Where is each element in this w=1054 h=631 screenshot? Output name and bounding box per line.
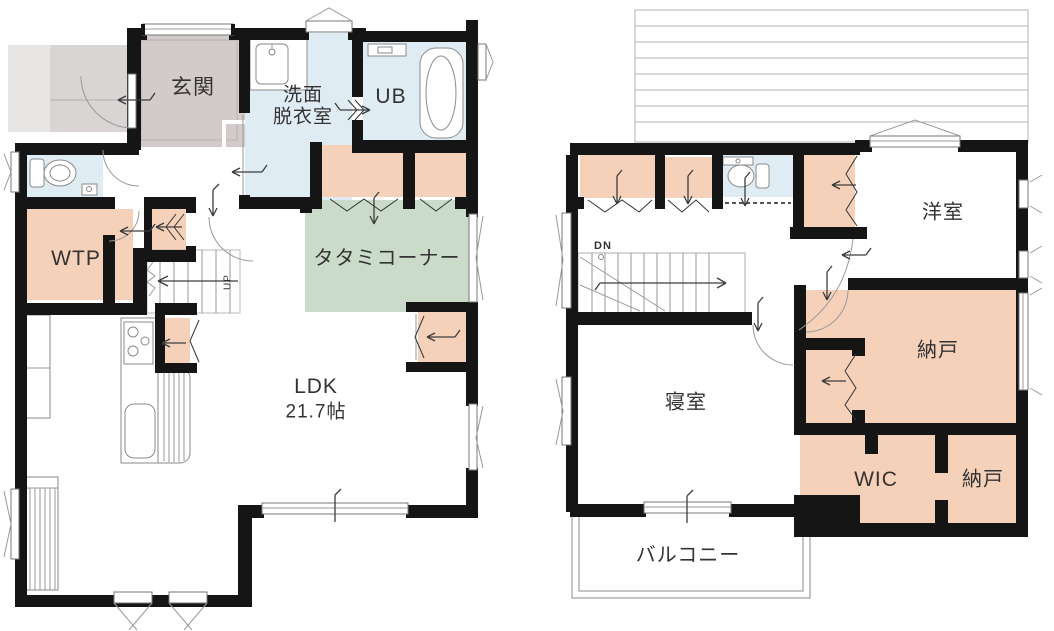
room-nando-upper	[806, 290, 1016, 425]
room-label-shinshitsu: 寝室	[665, 386, 707, 415]
room-label-wic: WIC	[854, 468, 898, 492]
room-label-tatami: タタミコーナー	[314, 242, 461, 271]
stairs-up-label: UP	[223, 274, 234, 290]
room-label-ldk: LDK	[294, 375, 338, 399]
floorplan-1f	[4, 8, 493, 630]
room-label-senmen-2: 脱衣室	[273, 102, 333, 129]
stairs-dn-label: DN	[594, 240, 612, 252]
room-label-genkan: 玄関	[171, 71, 215, 101]
room-label-wtp: WTP	[51, 247, 101, 271]
room-label-nando-upper: 納戸	[917, 334, 959, 363]
room-label-yoshitsu: 洋室	[922, 196, 964, 225]
room-label-ldk-size: 21.7帖	[286, 397, 347, 424]
deck-steps	[25, 477, 58, 590]
stairs-2f	[578, 253, 745, 313]
entry-approach	[8, 45, 50, 132]
floor-plan-drawing	[0, 0, 1054, 631]
floor-plan-canvas: 玄関 洗面 脱衣室 UB WTP タタミコーナー LDK 21.7帖 UP DN…	[0, 0, 1054, 631]
closet-2f-c	[804, 152, 855, 228]
roof-hatching	[635, 10, 1028, 142]
floorplan-2f	[556, 10, 1042, 598]
entry-porch	[50, 45, 135, 132]
room-label-balcony: バルコニー	[636, 539, 741, 568]
room-label-nando-lower: 納戸	[962, 463, 1004, 492]
pantry-counter	[26, 315, 50, 418]
room-label-ub: UB	[375, 85, 406, 109]
